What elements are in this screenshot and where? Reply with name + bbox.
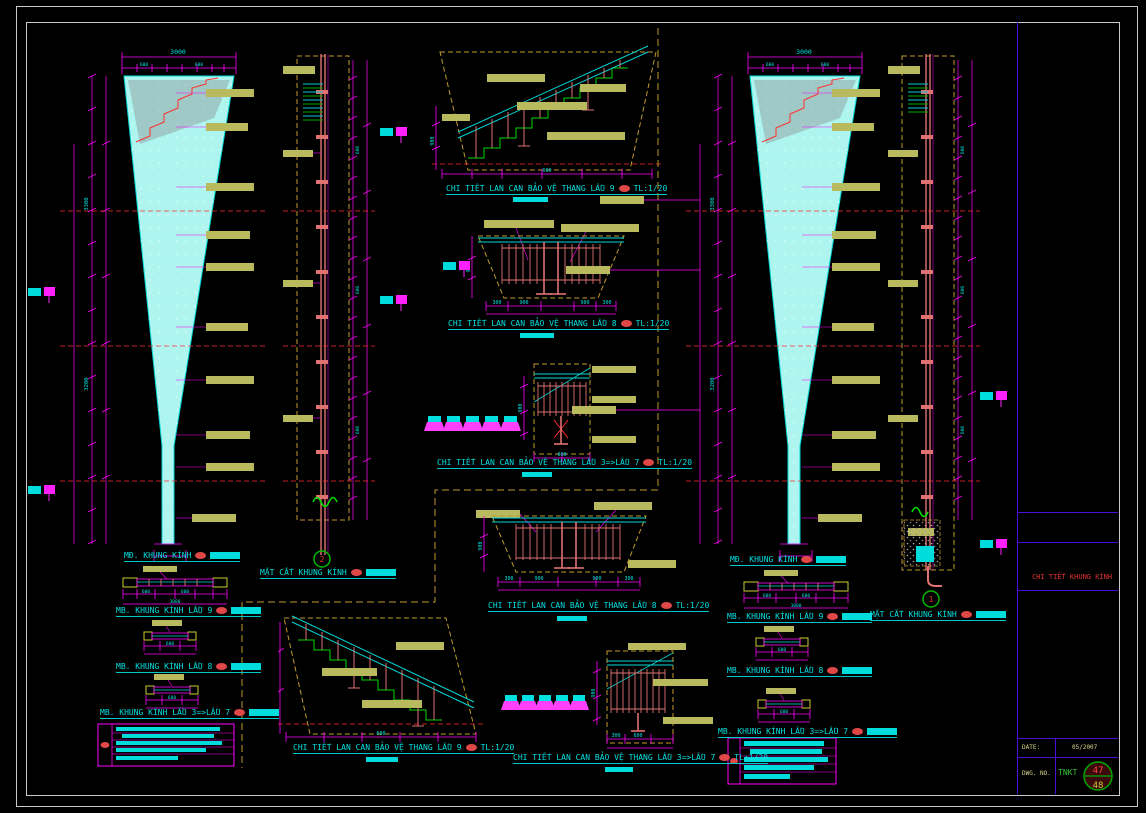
scale-text: TL:1/20 <box>634 184 668 193</box>
label-bar <box>231 607 261 614</box>
left-section-label: MẶT CẮT KHUNG KÍNH <box>260 568 396 579</box>
detail-mark-icon <box>801 556 812 563</box>
right-plan-lau3-7-label: MB. KHUNG KÍNH LẦU 3=>LẦU 7 <box>718 727 897 738</box>
detail-mark-icon <box>466 744 477 751</box>
label-bar <box>867 728 897 735</box>
scale-text: TL:1/20 <box>676 601 710 610</box>
titleblock-divider <box>1017 590 1118 591</box>
detail-mark-icon <box>852 728 863 735</box>
detail-mark-icon <box>643 459 654 466</box>
detail-mark-icon <box>216 663 227 670</box>
label-bar <box>231 663 261 670</box>
label-text: MĐ. KHUNG KÍNH <box>730 555 797 564</box>
detail6-label: CHI TIẾT LAN CAN BẢO VỆ THANG LẦU 3=>LẦU… <box>513 753 768 764</box>
label-bar <box>210 552 240 559</box>
label-text: MB. KHUNG KÍNH LẦU 3=>LẦU 7 <box>718 727 848 736</box>
label-bar <box>816 556 846 563</box>
right-section-label: MẶT CẮT KHUNG KÍNH <box>870 610 1006 621</box>
detail6-underbar <box>605 767 633 772</box>
label-text: CHI TIẾT LAN CAN BẢO VỆ THANG LẦU 9 <box>293 743 462 752</box>
label-text: MB. KHUNG KÍNH LẦU 8 <box>116 662 212 671</box>
detail-mark-icon <box>621 320 632 327</box>
titleblock-divider <box>1017 512 1118 513</box>
boundary-overlay <box>0 0 1146 813</box>
right-elevation-label: MĐ. KHUNG KÍNH <box>730 555 846 566</box>
detail-mark-icon <box>827 667 838 674</box>
detail3-label: CHI TIẾT LAN CAN BẢO VỆ THANG LẦU 3=>LẦU… <box>437 458 692 469</box>
dwg-no-label: DWG. NO. <box>1022 770 1051 777</box>
detail-mark-icon <box>827 613 838 620</box>
right-plan-lau8-label: MB. KHUNG KÍNH LẦU 8 <box>727 666 872 677</box>
scale-text: TL:1/20 <box>636 319 670 328</box>
label-text: CHI TIẾT LAN CAN BẢO VỆ THANG LẦU 8 <box>488 601 657 610</box>
sheet-number-stamp: 47 48 <box>1080 758 1116 794</box>
label-text: MB. KHUNG KÍNH LẦU 8 <box>727 666 823 675</box>
label-bar <box>976 611 1006 618</box>
label-bar <box>842 613 872 620</box>
detail-mark-icon <box>661 602 672 609</box>
label-text: CHI TIẾT LAN CAN BẢO VỆ THANG LẦU 8 <box>448 319 617 328</box>
label-text: MẶT CẮT KHUNG KÍNH <box>260 568 347 577</box>
scale-text: TL:1/20 <box>481 743 515 752</box>
detail3-underbar <box>522 472 552 477</box>
sheet-number-bottom: 48 <box>1093 781 1104 791</box>
detail-mark-icon <box>619 185 630 192</box>
detail4-underbar <box>557 616 587 621</box>
detail4-label: CHI TIẾT LAN CAN BẢO VỆ THANG LẦU 8 TL:1… <box>488 601 709 612</box>
detail5-underbar <box>366 757 398 762</box>
left-plan-lau3-7-label: MB. KHUNG KÍNH LẦU 3=>LẦU 7 <box>100 708 279 719</box>
detail-mark-icon <box>216 607 227 614</box>
label-text: MB. KHUNG KÍNH LẦU 9 <box>727 612 823 621</box>
sheet-side-title: CHI TIẾT KHUNG KÍNH <box>1032 573 1112 581</box>
scale-text: TL:1/20 <box>734 753 768 762</box>
detail2-underbar <box>520 333 554 338</box>
detail-mark-icon <box>719 754 730 761</box>
left-elevation-label: MĐ. KHUNG KÍNH <box>124 551 240 562</box>
titleblock-divider <box>1017 542 1118 543</box>
date-value: 05/2007 <box>1072 744 1097 751</box>
cad-sheet: 3000 600 600 3300 3200 <box>0 0 1146 813</box>
scale-text: TL:1/20 <box>658 458 692 467</box>
label-text: MĐ. KHUNG KÍNH <box>124 551 191 560</box>
detail-mark-icon <box>351 569 362 576</box>
label-text: MB. KHUNG KÍNH LẦU 9 <box>116 606 212 615</box>
date-label: DATE: <box>1022 744 1040 751</box>
right-plan-lau9-label: MB. KHUNG KÍNH LẦU 9 <box>727 612 872 623</box>
detail2-label: CHI TIẾT LAN CAN BẢO VỆ THANG LẦU 8 TL:1… <box>448 319 669 330</box>
label-text: MẶT CẮT KHUNG KÍNH <box>870 610 957 619</box>
company-name: TNKT <box>1058 768 1077 777</box>
left-plan-lau8-label: MB. KHUNG KÍNH LẦU 8 <box>116 662 261 673</box>
detail5-label: CHI TIẾT LAN CAN BẢO VỆ THANG LẦU 9 TL:1… <box>293 743 514 754</box>
detail-mark-icon <box>234 709 245 716</box>
detail1-label: CHI TIẾT LAN CAN BẢO VỆ THANG LẦU 9 TL:1… <box>446 184 667 195</box>
label-bar <box>842 667 872 674</box>
sheet-number-top: 47 <box>1093 766 1104 776</box>
titleblock-left-divider <box>1017 22 1018 794</box>
detail-mark-icon <box>961 611 972 618</box>
detail1-underbar <box>513 197 548 202</box>
detail-mark-icon <box>195 552 206 559</box>
label-text: CHI TIẾT LAN CAN BẢO VỆ THANG LẦU 3=>LẦU… <box>437 458 639 467</box>
label-text: CHI TIẾT LAN CAN BẢO VỆ THANG LẦU 3=>LẦU… <box>513 753 715 762</box>
titleblock-divider <box>1017 738 1118 739</box>
label-text: MB. KHUNG KÍNH LẦU 3=>LẦU 7 <box>100 708 230 717</box>
label-text: CHI TIẾT LAN CAN BẢO VỆ THANG LẦU 9 <box>446 184 615 193</box>
left-plan-lau9-label: MB. KHUNG KÍNH LẦU 9 <box>116 606 261 617</box>
titleblock-cell-divider <box>1055 738 1056 794</box>
label-bar <box>249 709 279 716</box>
label-bar <box>366 569 396 576</box>
